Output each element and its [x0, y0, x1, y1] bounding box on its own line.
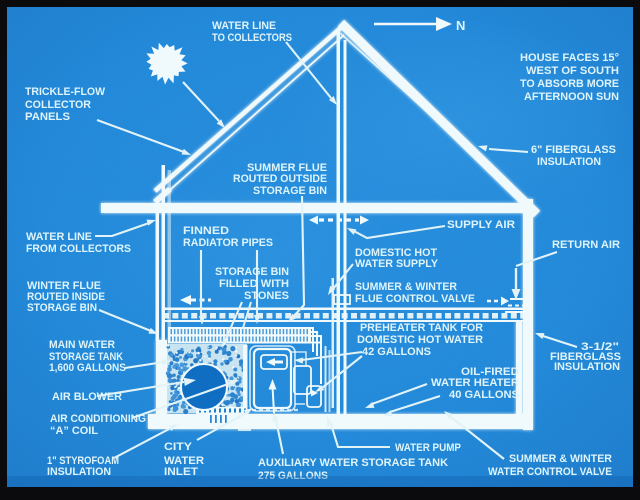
svg-text:AFTERNOON SUN: AFTERNOON SUN — [524, 91, 619, 103]
svg-text:WEST OF SOUTH: WEST OF SOUTH — [526, 65, 619, 77]
svg-text:STORAGE BIN: STORAGE BIN — [27, 302, 97, 314]
svg-text:WATER SUPPLY: WATER SUPPLY — [355, 258, 439, 270]
svg-text:INSULATION: INSULATION — [537, 156, 601, 168]
svg-text:6" FIBERGLASS: 6" FIBERGLASS — [531, 144, 616, 156]
svg-text:N: N — [456, 18, 465, 33]
svg-text:42 GALLONS: 42 GALLONS — [362, 346, 431, 358]
svg-text:FROM COLLECTORS: FROM COLLECTORS — [26, 243, 131, 255]
svg-text:STORAGE BIN: STORAGE BIN — [253, 185, 327, 197]
svg-text:AUXILIARY WATER STORAGE TANK: AUXILIARY WATER STORAGE TANK — [258, 457, 448, 469]
svg-text:TRICKLE-FLOW: TRICKLE-FLOW — [25, 86, 106, 98]
svg-text:STORAGE BIN: STORAGE BIN — [215, 266, 289, 278]
svg-text:1,600 GALLONS: 1,600 GALLONS — [49, 362, 126, 374]
svg-text:AIR CONDITIONING: AIR CONDITIONING — [50, 413, 146, 425]
svg-text:COLLECTOR: COLLECTOR — [25, 99, 91, 111]
svg-text:WATER LINE: WATER LINE — [212, 20, 276, 32]
svg-text:WATER LINE: WATER LINE — [26, 231, 92, 243]
svg-text:DOMESTIC HOT WATER: DOMESTIC HOT WATER — [357, 334, 483, 346]
svg-text:HOUSE FACES 15°: HOUSE FACES 15° — [520, 52, 619, 64]
svg-text:PREHEATER TANK FOR: PREHEATER TANK FOR — [360, 322, 483, 334]
svg-text:ROUTED OUTSIDE: ROUTED OUTSIDE — [233, 173, 327, 185]
svg-text:MAIN WATER: MAIN WATER — [49, 339, 115, 351]
svg-text:SUPPLY AIR: SUPPLY AIR — [447, 219, 515, 231]
svg-text:WATER PUMP: WATER PUMP — [395, 442, 461, 454]
svg-text:SUMMER & WINTER: SUMMER & WINTER — [509, 453, 612, 465]
svg-text:WATER HEATER: WATER HEATER — [431, 377, 519, 389]
svg-text:FINNED: FINNED — [183, 225, 229, 237]
svg-text:TO COLLECTORS: TO COLLECTORS — [212, 32, 292, 44]
svg-text:PANELS: PANELS — [25, 111, 70, 123]
svg-text:40 GALLONS: 40 GALLONS — [449, 389, 519, 401]
svg-text:AIR BLOWER: AIR BLOWER — [52, 391, 122, 403]
svg-text:“A” COIL: “A” COIL — [50, 425, 98, 437]
svg-text:RETURN AIR: RETURN AIR — [552, 239, 620, 251]
svg-text:RADIATOR PIPES: RADIATOR PIPES — [183, 237, 273, 249]
svg-text:FLUE CONTROL VALVE: FLUE CONTROL VALVE — [355, 293, 475, 305]
svg-text:TO ABSORB MORE: TO ABSORB MORE — [520, 78, 619, 90]
svg-text:STONES: STONES — [244, 290, 289, 302]
svg-text:INSULATION: INSULATION — [554, 361, 620, 373]
svg-text:CITY: CITY — [164, 441, 193, 453]
svg-text:FILLED WITH: FILLED WITH — [219, 278, 289, 290]
svg-text:SUMMER & WINTER: SUMMER & WINTER — [355, 281, 457, 293]
